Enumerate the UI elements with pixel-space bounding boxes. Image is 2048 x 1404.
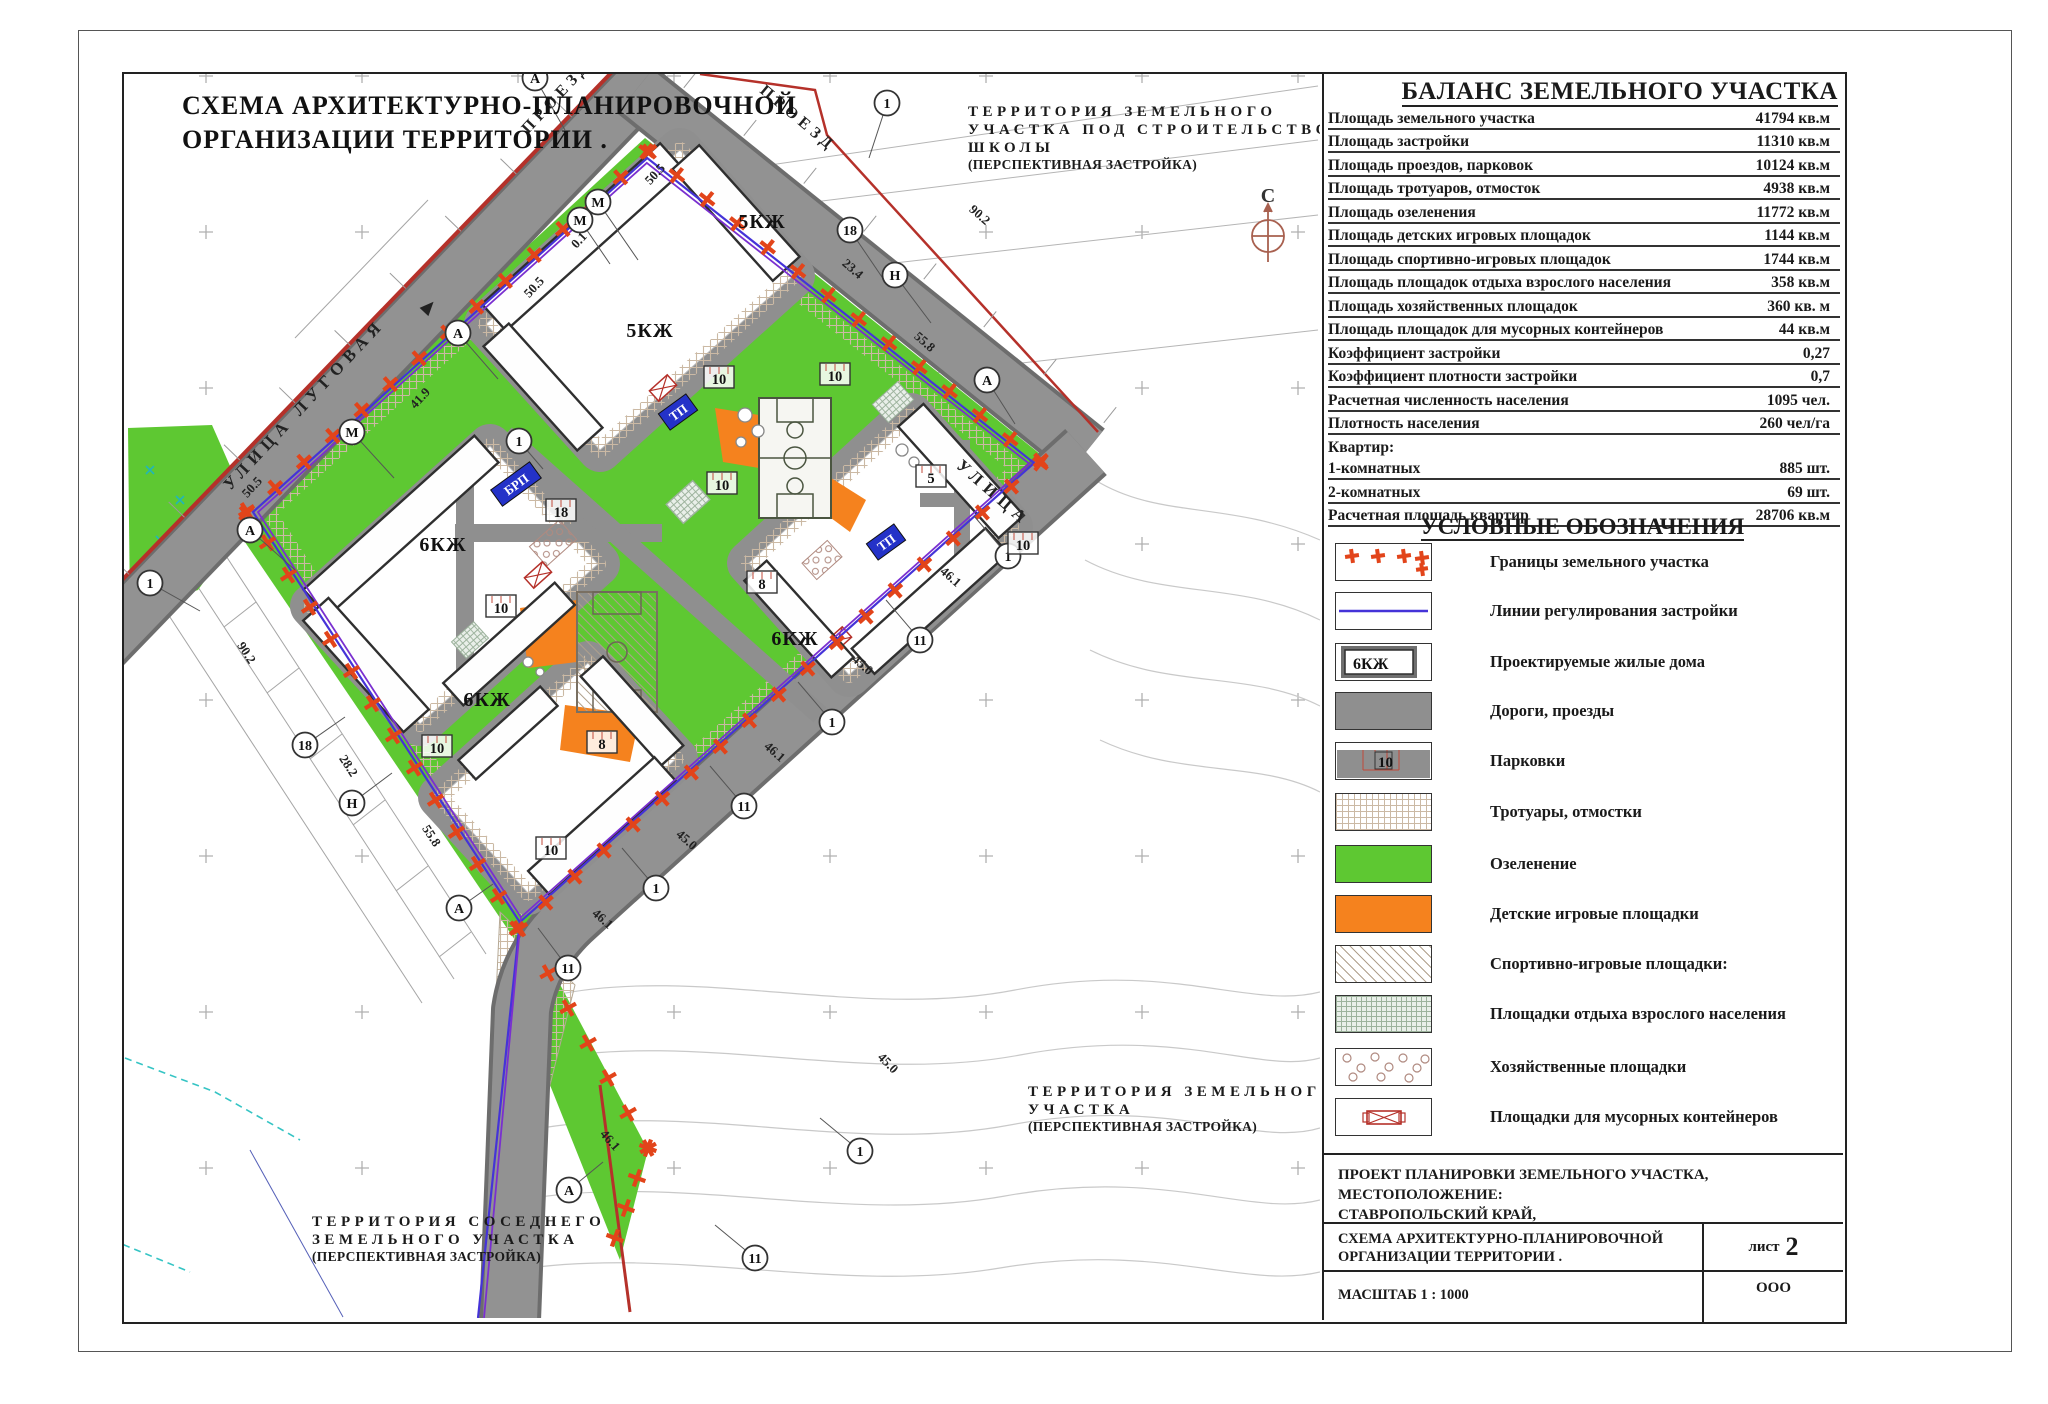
axis-marker-label: 18	[843, 224, 857, 239]
balance-row-value: 1144 кв.м	[1764, 226, 1840, 245]
boundary-symbol-icon	[1335, 543, 1432, 581]
axis-marker-label: А	[530, 72, 541, 87]
balance-row-value: 360 кв. м	[1767, 297, 1840, 316]
axis-marker: 1	[820, 1118, 873, 1164]
legend-item-label: Парковки	[1490, 751, 1565, 771]
sport-symbol-icon	[1335, 945, 1432, 983]
map-title-line2: ОРГАНИЗАЦИИ ТЕРРИТОРИИ .	[182, 125, 608, 154]
legend-item-label: Площадки для мусорных контейнеров	[1490, 1107, 1778, 1127]
parking-label: 18	[546, 499, 576, 521]
project-location-line1: ПРОЕКТ ПЛАНИРОВКИ ЗЕМЕЛЬНОГО УЧАСТКА, МЕ…	[1338, 1165, 1843, 1205]
parking-label: 10	[707, 472, 737, 494]
balance-row: Площадь тротуаров, отмосток4938 кв.м	[1328, 177, 1840, 201]
balance-row-label: Площадь застройки	[1328, 132, 1469, 151]
balance-row-label: 2-комнатных	[1328, 483, 1420, 502]
balance-row-value: 1095 чел.	[1767, 391, 1840, 410]
balance-row-label: Квартир:	[1328, 438, 1394, 457]
legend-item-sport: Спортивно-игровые площадки:	[1335, 945, 1835, 983]
balance-row-value: 358 кв.м	[1771, 273, 1840, 292]
parking-count: 18	[554, 505, 569, 521]
building-label: 6КЖ	[419, 534, 466, 556]
balance-row: Площадь спортивно-игровых площадок1744 к…	[1328, 247, 1840, 271]
axis-marker-label: 11	[913, 634, 926, 649]
parking-symbol-icon: 10	[1335, 742, 1432, 780]
balance-table-rows: Площадь земельного участка41794 кв.мПлощ…	[1328, 106, 1840, 527]
axis-marker-label: 1	[857, 1145, 864, 1160]
parking-count: 10	[494, 601, 509, 617]
balance-row: Площадь площадок отдыха взрослого населе…	[1328, 271, 1840, 295]
parking-label: 8	[747, 571, 777, 593]
parking-count: 10	[430, 741, 445, 757]
parking-label: 8	[587, 731, 617, 753]
legend-item-label: Детские игровые площадки	[1490, 904, 1699, 924]
balance-row-label: Площадь детских игровых площадок	[1328, 226, 1591, 245]
balance-row: Площадь хозяйственных площадок360 кв. м	[1328, 294, 1840, 318]
parking-count: 10	[828, 369, 843, 385]
parking-count: 10	[712, 372, 727, 388]
dimension-label: 45.0	[875, 1049, 902, 1076]
legend-item-label: Спортивно-игровые площадки:	[1490, 954, 1728, 974]
balance-row-value: 10124 кв.м	[1756, 156, 1840, 175]
balance-row-value: 69 шт.	[1787, 483, 1840, 502]
balance-row: 2-комнатных69 шт.	[1328, 480, 1840, 504]
balance-row: Площадь озеленения11772 кв.м	[1328, 200, 1840, 224]
parking-count: 8	[598, 737, 605, 753]
balance-row-value: 885 шт.	[1779, 459, 1840, 478]
balance-row-value: 0,27	[1803, 344, 1840, 363]
parking-label: 10	[486, 595, 516, 617]
balance-row-label: Площадь площадок отдыха взрослого населе…	[1328, 273, 1671, 292]
balance-row-value: 1744 кв.м	[1763, 250, 1840, 269]
rest-symbol-icon	[1335, 995, 1432, 1033]
balance-row-label: Расчетная численность населения	[1328, 391, 1569, 410]
axis-marker-label: Н	[890, 269, 901, 284]
balance-row-value: 11310 кв.м	[1756, 132, 1840, 151]
balance-row-label: Плотность населения	[1328, 414, 1480, 433]
axis-marker-label: 11	[748, 1252, 761, 1267]
parking-label: 10	[1008, 532, 1038, 554]
legend-item-label: Озеленение	[1490, 854, 1577, 874]
balance-row-value: 260 чел/га	[1759, 414, 1840, 433]
legend-item-household: Хозяйственные площадки	[1335, 1048, 1835, 1086]
balance-row: Площадь проездов, парковок10124 кв.м	[1328, 153, 1840, 177]
svg-text:10: 10	[1378, 755, 1393, 771]
balance-row: Коэффициент застройки0,27	[1328, 341, 1840, 365]
south-territory-text: ТЕРРИТОРИЯ ЗЕМЕЛЬНОГО УЧАСТКА (ПЕРСПЕКТИ…	[1028, 1084, 1340, 1134]
balance-row-value: 41794 кв.м	[1756, 109, 1840, 128]
basketball-court	[759, 398, 831, 518]
building-label: 5КЖ	[738, 211, 785, 233]
parking-count: 10	[715, 478, 730, 494]
project-location-line2: СТАВРОПОЛЬСКИЙ КРАЙ,	[1338, 1205, 1843, 1225]
svg-text:6КЖ: 6КЖ	[1353, 656, 1389, 673]
axis-marker-label: 18	[298, 739, 312, 754]
building-label: 5КЖ	[626, 320, 673, 342]
land-balance-table: БАЛАНС ЗЕМЕЛЬНОГО УЧАСТКА Площадь земель…	[1328, 78, 1840, 527]
sidewalk-symbol-icon	[1335, 793, 1432, 831]
balance-table-title: БАЛАНС ЗЕМЕЛЬНОГО УЧАСТКА	[1328, 78, 1840, 106]
parking-label: 10	[704, 366, 734, 388]
balance-row: Площадь земельного участка41794 кв.м	[1328, 106, 1840, 130]
axis-marker-label: А	[453, 327, 464, 342]
axis-marker: А	[447, 884, 494, 921]
road-symbol-icon	[1335, 692, 1432, 730]
legend-item-rest: Площадки отдыха взрослого населения	[1335, 995, 1835, 1033]
axis-marker-label: 11	[561, 962, 574, 977]
dimension-label: 28.2	[336, 752, 361, 779]
sheet-label: лист	[1748, 1239, 1779, 1256]
parking-count: 5	[927, 471, 934, 487]
balance-row: Коэффициент плотности застройки0,7	[1328, 365, 1840, 389]
legend-title: УСЛОВНЫЕ ОБОЗНАЧЕНИЯ	[1322, 514, 1843, 540]
balance-row: Плотность населения260 чел/га	[1328, 412, 1840, 436]
sheet-number: 2	[1786, 1232, 1799, 1262]
legend-item-sidewalk: Тротуары, отмостки	[1335, 793, 1835, 831]
axis-marker: 11	[715, 1225, 768, 1271]
legend-item-road: Дороги, проезды	[1335, 692, 1835, 730]
axis-marker-label: 1	[653, 882, 660, 897]
legend-item-greenery: Озеленение	[1335, 845, 1835, 883]
project-location: ПРОЕКТ ПЛАНИРОВКИ ЗЕМЕЛЬНОГО УЧАСТКА, МЕ…	[1322, 1155, 1843, 1224]
balance-row-value: 11772 кв.м	[1756, 203, 1840, 222]
axis-marker-label: 1	[516, 435, 523, 450]
parking-count: 10	[544, 843, 559, 859]
drawing-sheet: УЛИЦА ЛУГОВАЯПРОЕЗДПРОЕЗДУЛИЦА50.50.150.…	[0, 0, 2048, 1404]
balance-row-label: Площадь площадок для мусорных контейнеро…	[1328, 320, 1663, 339]
axis-marker-label: М	[591, 196, 604, 211]
axis-marker-label: А	[454, 902, 465, 917]
balance-row-label: Площадь озеленения	[1328, 203, 1476, 222]
sheet-number-cell: лист 2	[1702, 1224, 1843, 1270]
trash-symbol-icon	[1335, 1098, 1432, 1136]
legend-item-regulation-line: Линии регулирования застройки	[1335, 592, 1835, 630]
map-title-line1: СХЕМА АРХИТЕКТУРНО-ПЛАНИРОВОЧНОЙ	[182, 91, 797, 120]
axis-marker: Н	[340, 773, 393, 816]
house-symbol-icon: 6КЖ	[1335, 643, 1432, 681]
balance-row-label: Площадь спортивно-игровых площадок	[1328, 250, 1611, 269]
legend-item-trash: Площадки для мусорных контейнеров	[1335, 1098, 1835, 1136]
balance-row: Расчетная численность населения1095 чел.	[1328, 388, 1840, 412]
legend-item-label: Проектируемые жилые дома	[1490, 652, 1705, 672]
balance-row-label: Площадь проездов, парковок	[1328, 156, 1533, 175]
playground-symbol-icon	[1335, 895, 1432, 933]
axis-marker-label: 1	[147, 577, 154, 592]
dimension-label: 90.2	[234, 639, 259, 666]
parking-count: 8	[758, 577, 765, 593]
balance-row-label: 1-комнатных	[1328, 459, 1420, 478]
legend-item-label: Границы земельного участка	[1490, 552, 1709, 572]
balance-row: 1-комнатных885 шт.	[1328, 457, 1840, 481]
panel-divider	[1322, 72, 1324, 1320]
axis-marker-label: А	[982, 374, 993, 389]
axis-marker-label: 1	[829, 716, 836, 731]
legend-item-label: Тротуары, отмостки	[1490, 802, 1642, 822]
scheme-name: СХЕМА АРХИТЕКТУРНО-ПЛАНИРОВОЧНОЙ ОРГАНИЗ…	[1338, 1230, 1663, 1266]
parking-label: 10	[820, 363, 850, 385]
north-compass-icon: С	[1252, 185, 1284, 262]
balance-row: Площадь площадок для мусорных контейнеро…	[1328, 318, 1840, 342]
parking-count: 10	[1016, 538, 1031, 554]
parking-label: 10	[422, 735, 452, 757]
axis-marker-label: М	[345, 426, 358, 441]
household-symbol-icon	[1335, 1048, 1432, 1086]
axis-marker: 1	[869, 91, 900, 159]
balance-row-value: 44 кв.м	[1779, 320, 1840, 339]
legend-item-label: Дороги, проезды	[1490, 701, 1614, 721]
parking-label: 10	[536, 837, 566, 859]
neighbor-territory-text: ТЕРРИТОРИЯ СОСЕДНЕГО ЗЕМЕЛЬНОГО УЧАСТКА …	[312, 1214, 609, 1264]
parking-label: 5	[916, 465, 946, 487]
balance-row-value: 4938 кв.м	[1763, 179, 1840, 198]
legend-item-label: Площадки отдыха взрослого населения	[1490, 1004, 1786, 1024]
axis-marker-label: М	[573, 214, 586, 229]
legend-item-house: 6КЖПроектируемые жилые дома	[1335, 643, 1835, 681]
balance-row-value: 0,7	[1811, 367, 1840, 386]
axis-marker-label: А	[564, 1184, 575, 1199]
legend-item-parking: 10Парковки	[1335, 742, 1835, 780]
legend-item-label: Линии регулирования застройки	[1490, 601, 1738, 621]
building-label: 6КЖ	[463, 689, 510, 711]
building-label: 6КЖ	[771, 628, 818, 650]
dimension-label: 90.2	[966, 201, 993, 227]
legend-item-playground: Детские игровые площадки	[1335, 895, 1835, 933]
legend-item-boundary: Границы земельного участка	[1335, 543, 1835, 581]
school-territory-text: ТЕРРИТОРИЯ ЗЕМЕЛЬНОГО УЧАСТКА ПОД СТРОИТ…	[968, 104, 1336, 172]
balance-row-label: Площадь хозяйственных площадок	[1328, 297, 1578, 316]
balance-row: Квартир:	[1328, 435, 1840, 457]
balance-row: Площадь застройки11310 кв.м	[1328, 130, 1840, 154]
balance-row-label: Площадь земельного участка	[1328, 109, 1535, 128]
scale-label: МАСШТАБ 1 : 1000	[1338, 1286, 1469, 1304]
axis-marker-label: 1	[884, 97, 891, 112]
axis-marker-label: А	[245, 524, 256, 539]
balance-row-label: Площадь тротуаров, отмосток	[1328, 179, 1540, 198]
greenery-symbol-icon	[1335, 845, 1432, 883]
balance-row: Площадь детских игровых площадок1144 кв.…	[1328, 224, 1840, 248]
axis-marker-label: 11	[737, 800, 750, 815]
balance-row-label: Коэффициент застройки	[1328, 344, 1500, 363]
legend-item-label: Хозяйственные площадки	[1490, 1057, 1686, 1077]
organization: ООО	[1702, 1272, 1843, 1322]
regulation-line-symbol-icon	[1335, 592, 1432, 630]
title-block: ПРОЕКТ ПЛАНИРОВКИ ЗЕМЕЛЬНОГО УЧАСТКА, МЕ…	[1322, 1153, 1843, 1320]
balance-row-label: Коэффициент плотности застройки	[1328, 367, 1577, 386]
axis-marker-label: Н	[347, 797, 358, 812]
